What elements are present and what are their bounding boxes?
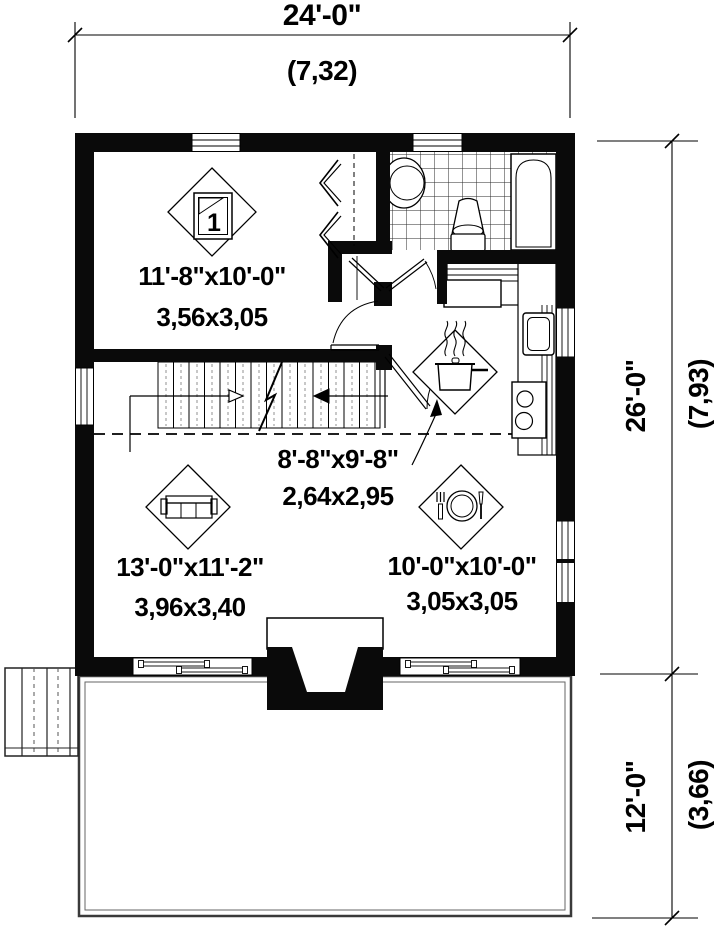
label-dining-imperial: 10'-0"x10'-0": [387, 553, 536, 579]
dim-deck-depth-metric: (3,66): [685, 760, 713, 830]
dining-symbol: [419, 465, 503, 549]
deck: [79, 676, 571, 916]
dim-width-imperial: 24'-0": [283, 1, 361, 31]
dim-deck-depth-imperial: 12'-0": [622, 761, 650, 834]
sofa-symbol: [146, 465, 230, 549]
window-bathroom-top: [413, 134, 462, 152]
window-living-bottom: [133, 658, 252, 675]
label-bedroom-metric: 3,56x3,05: [156, 304, 267, 330]
window-kitchen-right: [556, 304, 575, 361]
window-dining-bottom: [400, 658, 520, 675]
stove: [512, 382, 546, 438]
label-bedroom-imperial: 11'-8"x10'-0": [138, 263, 286, 289]
window-bedroom-top: [192, 134, 240, 152]
fireplace: [267, 618, 383, 710]
dim-width-metric: (7,32): [287, 57, 357, 85]
staircase: [130, 362, 388, 452]
label-hall-imperial: 8'-8"x9'-8": [277, 446, 398, 472]
floor-plan-canvas: 1: [0, 0, 720, 938]
label-dining-metric: 3,05x3,05: [406, 588, 517, 614]
bedroom-number: 1: [207, 209, 221, 237]
window-dining-right: [556, 517, 575, 606]
hearth: [267, 618, 383, 649]
diamond-outline: [419, 465, 503, 549]
fridge: [444, 280, 501, 307]
label-living-imperial: 13'-0"x11'-2": [116, 554, 264, 580]
bedroom-symbol: 1: [168, 168, 256, 256]
exterior-stairs: [5, 668, 78, 756]
kitchen-sink: [523, 313, 554, 355]
dim-main-depth-metric: (7,93): [685, 359, 713, 429]
bedroom-door: [331, 301, 379, 350]
label-living-metric: 3,96x3,40: [134, 594, 245, 620]
window-stair-left: [76, 368, 94, 425]
label-hall-metric: 2,64x2,95: [282, 483, 393, 509]
bathtub: [511, 154, 556, 250]
bathroom-door: [386, 259, 436, 291]
dim-main-depth-imperial: 26'-0": [622, 360, 650, 433]
